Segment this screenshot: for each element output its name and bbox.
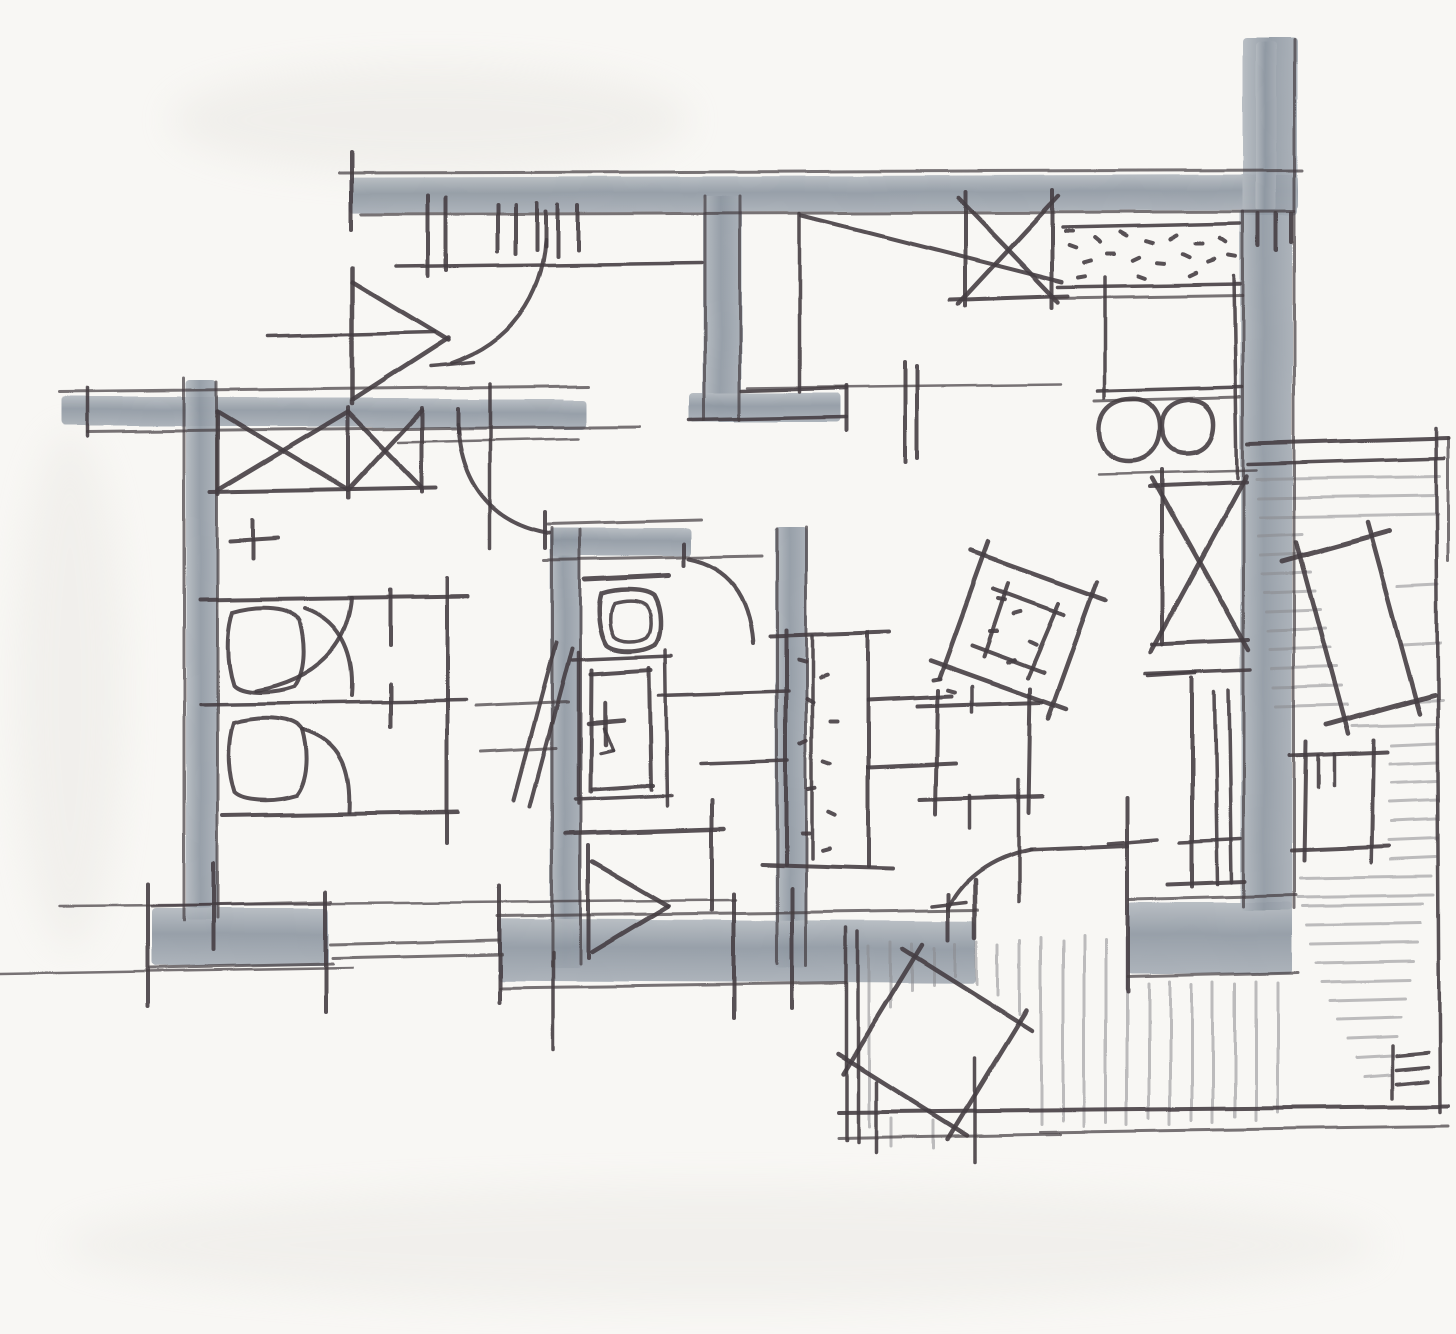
speckle-dot xyxy=(1008,660,1015,662)
hatch-stroke xyxy=(1268,629,1325,631)
stroke xyxy=(1028,688,1030,812)
scanned-floor-plan-page: Hand-drawn apartment floor plan marker s… xyxy=(0,0,1456,1334)
speckle-dot xyxy=(808,788,815,789)
speckle-dot xyxy=(1183,255,1189,258)
hatch-stroke xyxy=(1316,961,1414,963)
wall-left-horizontal xyxy=(62,397,586,429)
speckle-dot xyxy=(1158,263,1165,264)
hatch-stroke xyxy=(1356,1056,1392,1058)
paper-smudge xyxy=(170,65,690,175)
speckle-dot xyxy=(1014,612,1021,614)
wall-left-vertical xyxy=(186,380,217,920)
hatch-stroke xyxy=(1352,724,1438,726)
hatch-stroke xyxy=(1402,642,1440,644)
stroke xyxy=(1304,742,1306,860)
hatch-stroke xyxy=(1338,1018,1400,1020)
hatch-stroke xyxy=(1310,942,1418,944)
hatch-stroke xyxy=(1302,904,1424,906)
speckle-dot xyxy=(1030,642,1036,645)
speckle-dot xyxy=(1229,255,1236,256)
stroke xyxy=(588,720,624,723)
wall-bottom-right xyxy=(1128,902,1292,974)
hatch-stroke xyxy=(1300,876,1432,878)
wall-top xyxy=(350,174,1298,213)
speckle-dot xyxy=(822,848,829,850)
hatch-stroke xyxy=(1348,1037,1396,1039)
stroke xyxy=(936,690,938,814)
stroke xyxy=(650,668,652,790)
wall-top-right-core xyxy=(1256,42,1276,212)
floor-plan-sketch xyxy=(0,0,1456,1334)
wall-mid-vertical xyxy=(703,196,742,422)
speckle-dot xyxy=(1078,276,1085,277)
hatch-stroke xyxy=(1392,781,1436,783)
speckle-dot xyxy=(798,660,805,662)
hatch-stroke xyxy=(1392,743,1436,745)
hatch-stroke xyxy=(1390,762,1438,764)
speckle-dot xyxy=(1084,261,1091,263)
speckle-dot xyxy=(998,598,1005,599)
hatch-stroke xyxy=(1364,1075,1390,1077)
hatch-stroke xyxy=(1276,705,1347,707)
hatch-stroke xyxy=(1392,857,1436,859)
hatch-stroke xyxy=(1398,584,1438,586)
speckle-dot xyxy=(933,678,940,679)
paper-smudge xyxy=(60,1185,1380,1305)
speckle-dot xyxy=(1133,257,1139,260)
hatch-stroke xyxy=(1330,999,1405,1001)
speckle-dot xyxy=(824,762,831,764)
speckle-dot xyxy=(1208,260,1215,262)
wall-bath-top xyxy=(550,528,690,556)
stroke xyxy=(1372,740,1374,862)
paper-smudge xyxy=(15,430,125,950)
hatch-stroke xyxy=(1390,838,1438,840)
speckle-dot xyxy=(820,676,827,678)
hatch-stroke xyxy=(1322,980,1410,982)
hatch-stroke xyxy=(1306,923,1421,925)
hatch-stroke xyxy=(1390,800,1438,802)
speckle-dot xyxy=(828,812,834,815)
speckle-dot xyxy=(1146,241,1153,243)
stroke xyxy=(590,670,591,792)
hatch-stroke xyxy=(1392,819,1436,821)
speckle-dot xyxy=(1139,276,1146,278)
hatch-stroke xyxy=(1298,895,1434,897)
hatch-stroke xyxy=(1270,648,1330,650)
speckle-dot xyxy=(1069,246,1076,248)
speckle-dot xyxy=(1189,273,1195,276)
speckle-dot xyxy=(948,690,955,692)
hatch-stroke xyxy=(1272,667,1336,669)
speckle-dot xyxy=(800,741,806,744)
stroke xyxy=(666,650,668,806)
hatch-stroke xyxy=(1274,686,1341,688)
wall-bottom-left xyxy=(152,908,328,966)
